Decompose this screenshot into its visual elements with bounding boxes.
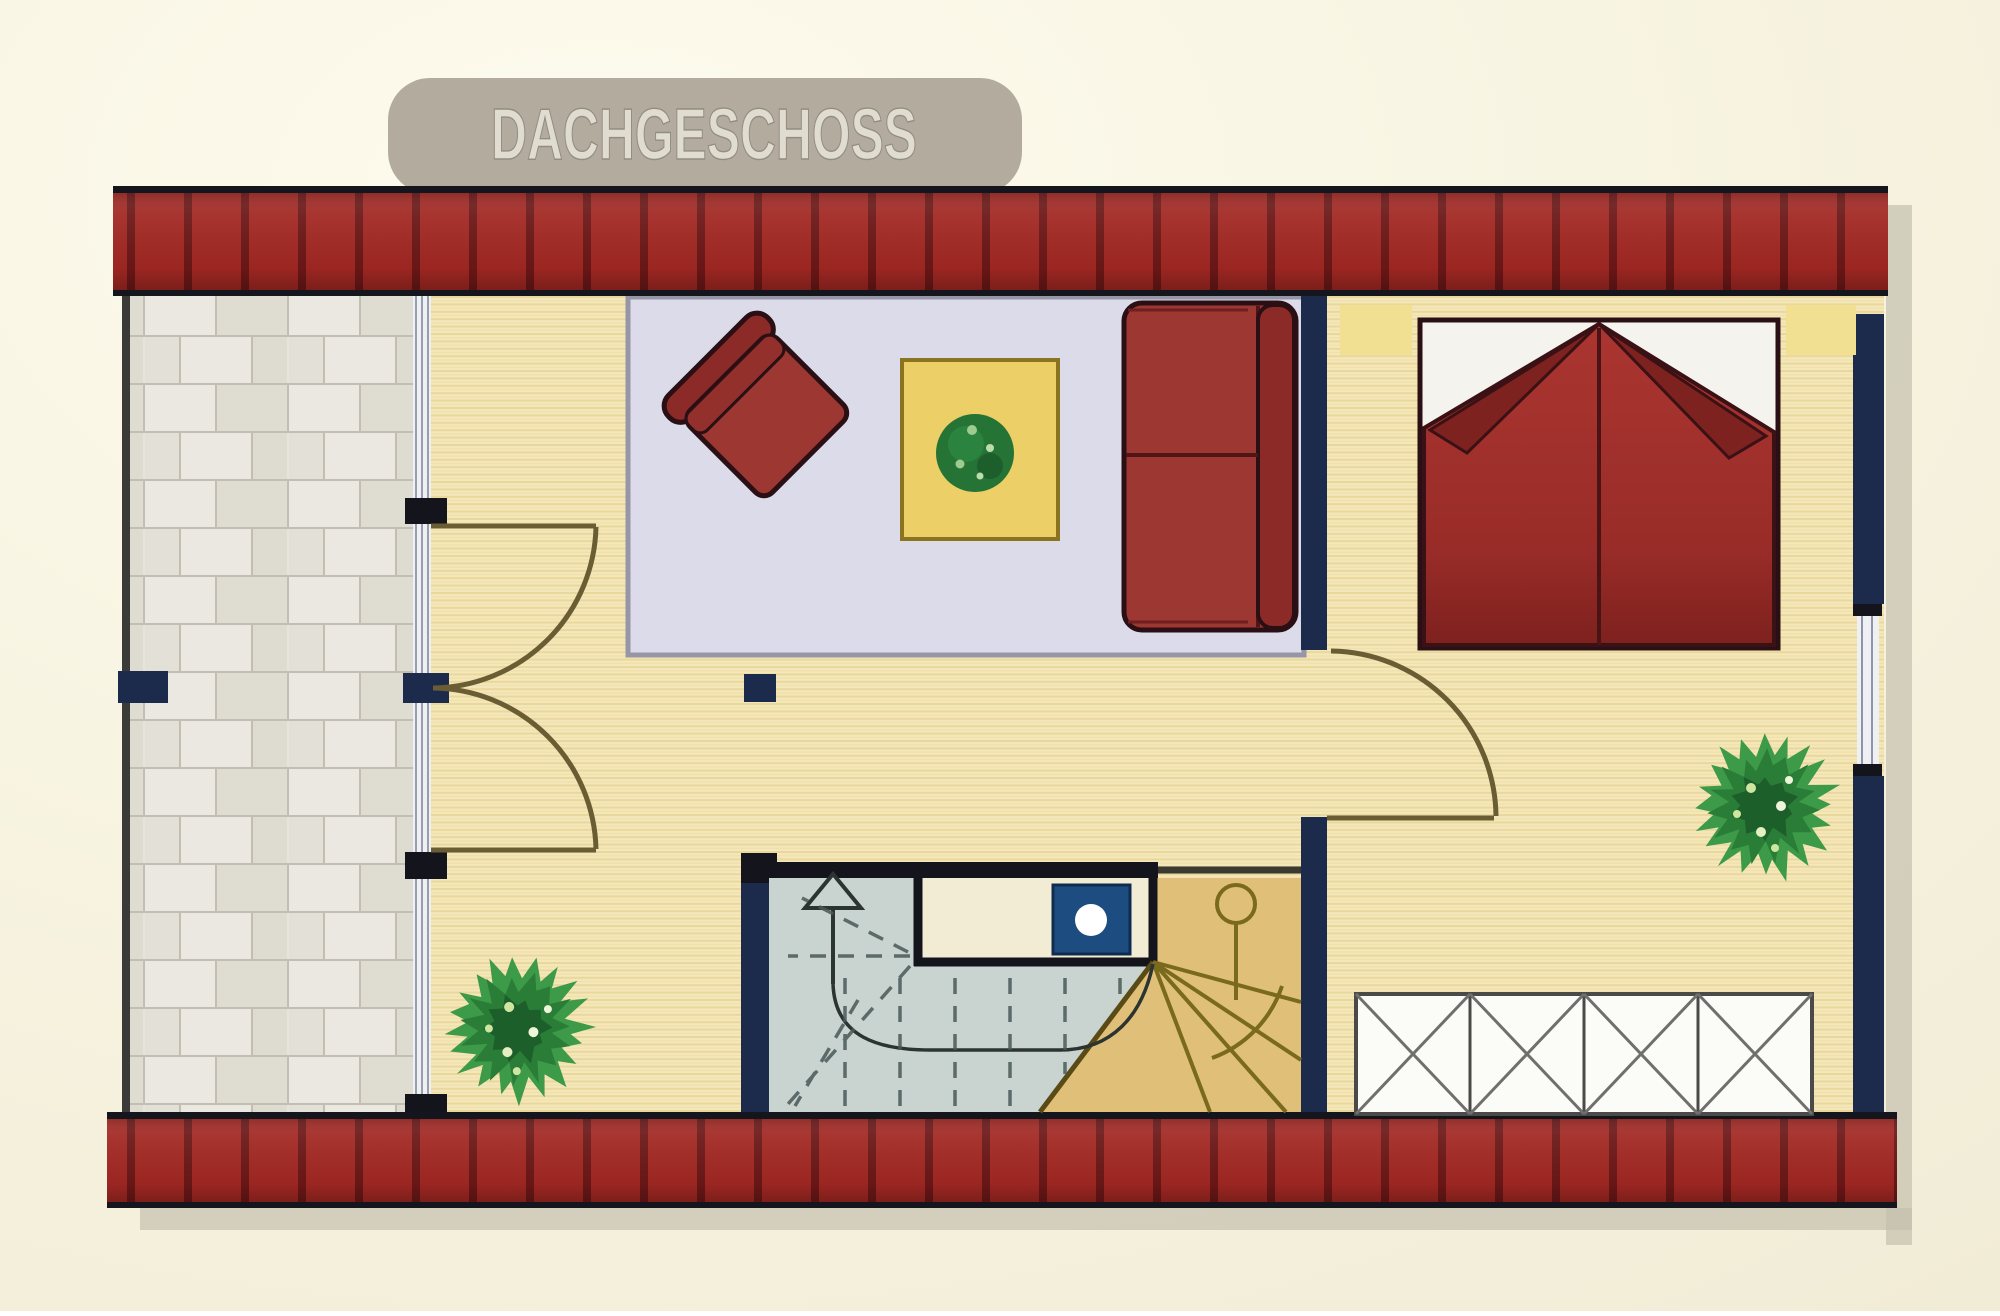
svg-text:DACHGESCHOSS: DACHGESCHOSS	[491, 95, 917, 175]
